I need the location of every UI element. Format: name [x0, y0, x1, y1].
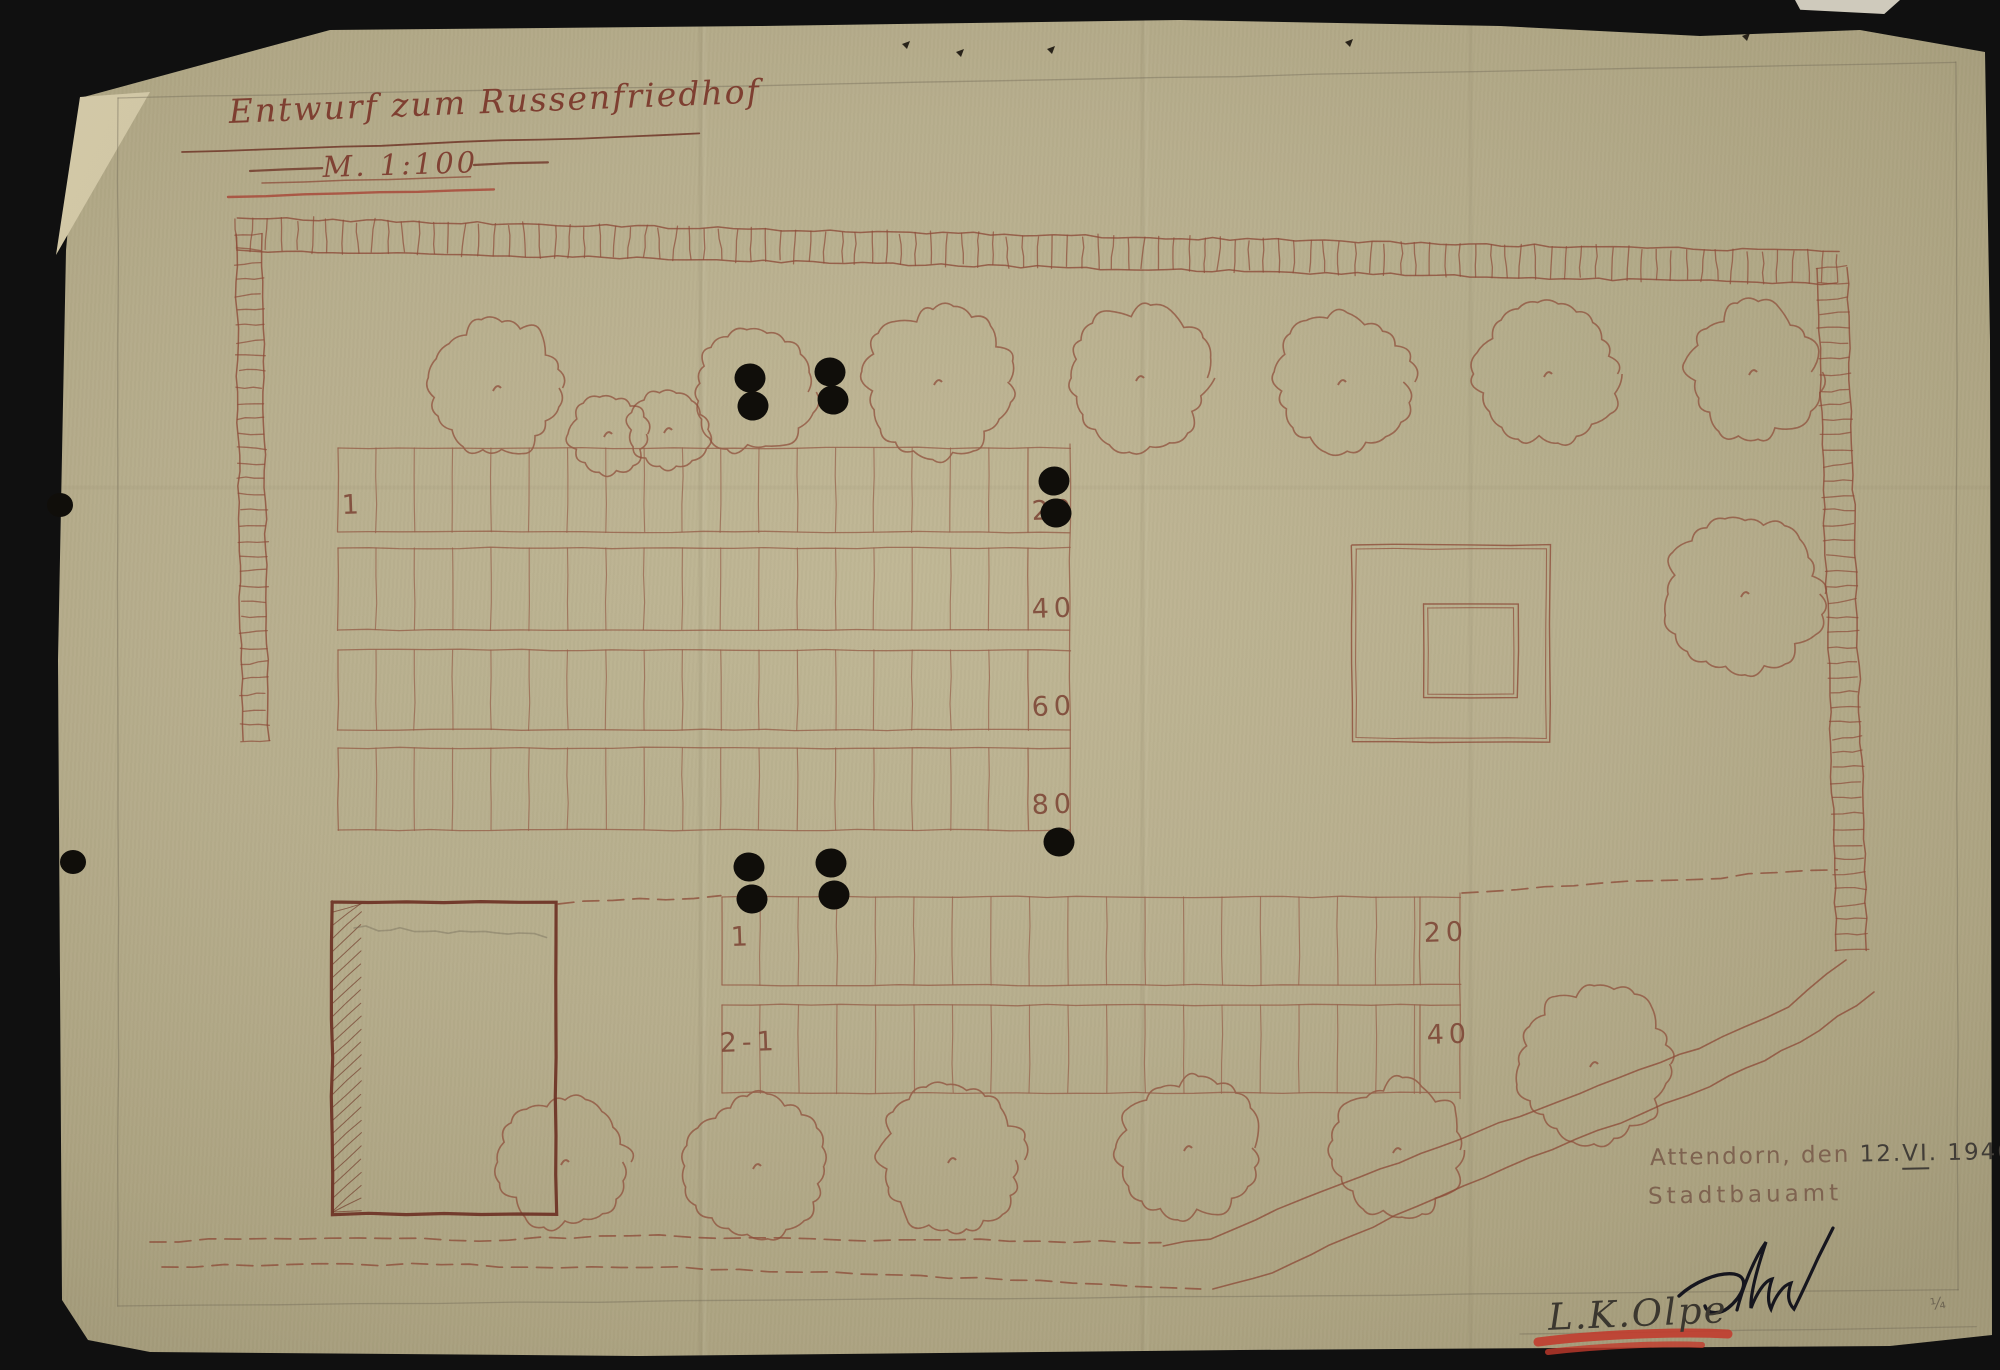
upper-field-grave-divider [529, 650, 530, 730]
hedge-edge [1817, 268, 1836, 950]
hedge-tick [1820, 312, 1849, 315]
hedge-tick [1823, 540, 1854, 541]
upper-field-grave-divider [490, 650, 491, 730]
building-hatch [333, 1042, 361, 1068]
ink-blot-dot [816, 383, 851, 416]
hedge-tick [1808, 249, 1810, 283]
hedge-tick [1836, 903, 1865, 907]
hedge-tick [1747, 252, 1748, 284]
upper-field-row-edge [338, 448, 339, 532]
hedge-tick [401, 222, 404, 252]
hedge-tick [1052, 236, 1053, 269]
hedge-tick [1475, 245, 1476, 277]
building-hatch [333, 904, 361, 912]
hedge-tick [1309, 240, 1311, 272]
hedge-tick [1429, 243, 1430, 275]
building-hatch [333, 964, 361, 990]
sheet-frame-line [1956, 62, 1958, 1290]
ink-blot-dot [1036, 464, 1072, 498]
tree-center-mark [561, 1160, 569, 1165]
hedge-tick [993, 232, 994, 265]
hedge-tick [509, 226, 510, 257]
hedge-tick [240, 724, 269, 725]
hedge-tick [244, 710, 266, 711]
building-outline [331, 902, 556, 1215]
lower-field-grave-divider [914, 897, 915, 985]
hedge-tick [1828, 599, 1856, 604]
upper-field-row-count-label: 80 [1031, 788, 1076, 821]
lower-field-grave-divider [1222, 897, 1223, 985]
hedge-tick [1823, 509, 1854, 511]
upper-field-grave-divider [873, 650, 874, 730]
memorial-outer-square [1351, 544, 1550, 742]
tree-crown [495, 1095, 634, 1231]
hedge-tick [1833, 766, 1864, 767]
upper-field-grave-divider [644, 448, 645, 532]
lower-field-grave-divider [1337, 1005, 1338, 1093]
hedge-tick [1006, 237, 1009, 268]
tree-center-mark [1393, 1148, 1401, 1153]
hedge-tick [297, 222, 299, 250]
lower-field-grave-divider [1107, 1005, 1108, 1093]
hedge-tick [703, 229, 704, 259]
tree-center-mark [493, 386, 501, 391]
building-hatch [333, 1107, 361, 1133]
upper-field-grave-divider [414, 548, 415, 630]
upper-field-grave-divider [644, 748, 645, 830]
building-hatch [333, 990, 361, 1016]
tree-crown [1328, 1076, 1464, 1219]
building-hatch [333, 925, 361, 951]
hedge-tick [1141, 237, 1145, 268]
ink-blot-dot [734, 363, 766, 394]
hedge-tick [1836, 918, 1866, 919]
hedge-tick [1445, 244, 1446, 277]
hedge-tick [1338, 242, 1340, 276]
signature [1737, 1228, 1833, 1310]
ink-blot-dot [736, 389, 771, 422]
hedge-tick [1830, 721, 1861, 722]
upper-field-grave-divider [567, 650, 568, 729]
hedge-tick [240, 693, 265, 695]
hedge-tick [1827, 585, 1858, 587]
hedge-tick [915, 232, 917, 265]
lower-field-row-count-label: 20 [1423, 916, 1468, 949]
hedge-tick [239, 631, 267, 634]
upper-field-grave-divider [720, 748, 721, 829]
lower-field-row-edge [1420, 897, 1421, 985]
building-hatch [333, 1055, 361, 1081]
lower-field-row-line [722, 1092, 1460, 1094]
hedge-tick [1823, 450, 1852, 451]
tree-crown [1069, 303, 1215, 454]
edge-speck [902, 41, 910, 49]
upper-field-grave-divider [720, 548, 721, 630]
building-hatch [333, 1198, 361, 1212]
upper-field-grave-divider [873, 448, 874, 532]
hedge-tick [434, 222, 435, 253]
hedge-tick [238, 433, 263, 434]
hedge-tick [1414, 243, 1416, 276]
hedge-tick [945, 234, 947, 267]
hedge-tick [235, 234, 262, 236]
upper-field-grave-divider [912, 748, 913, 830]
hedge-tick [1263, 238, 1264, 272]
hedge-tick [1111, 236, 1113, 269]
hedge-tick [555, 226, 557, 258]
hedge-tick [461, 223, 465, 256]
upper-field-grave-divider [758, 448, 759, 533]
hedge-tick [238, 493, 264, 495]
building-hatch [333, 1211, 361, 1212]
lower-field-grave-divider [1337, 897, 1338, 985]
hedge-tick [1278, 239, 1279, 273]
path-edge [1213, 992, 1874, 1289]
hedge-tick [1355, 243, 1356, 275]
hedge-tick [1823, 419, 1853, 420]
hedge-tick [523, 222, 526, 257]
scale-underline [228, 189, 494, 197]
hedge-edge [237, 218, 1839, 252]
lower-field-grave-divider [1376, 1005, 1377, 1093]
lower-field-grave-divider [914, 1005, 915, 1093]
hedge-tick [673, 226, 678, 260]
hedge-tick [1792, 251, 1794, 281]
hedge-tick [1762, 252, 1764, 284]
hedge-tick [1656, 249, 1657, 279]
building-hatch [333, 1081, 361, 1107]
upper-field-grave-divider [758, 748, 759, 830]
upper-field-row-line [338, 447, 1070, 449]
upper-field-grave-divider [452, 748, 453, 830]
upper-field-grave-divider [529, 548, 530, 631]
hedge-tick [1204, 238, 1205, 272]
tree-center-mark [664, 428, 672, 433]
hedge-tick [237, 477, 264, 478]
upper-field-grave-divider [951, 748, 952, 831]
building-hatch [333, 1068, 361, 1094]
hedge-tick [568, 225, 570, 258]
upper-field-grave-divider [950, 448, 951, 532]
hedge-tick [238, 542, 268, 543]
hedge-tick [312, 217, 314, 254]
upper-field-grave-divider [376, 448, 377, 533]
hedge-tick [1821, 342, 1848, 343]
hedge-tick [237, 340, 264, 344]
upper-field-grave-divider [452, 448, 453, 532]
lower-field-grave-divider [1260, 1005, 1261, 1093]
punch-hole [60, 850, 86, 874]
upper-field-grave-divider [606, 748, 607, 829]
hedge-tick [1670, 251, 1671, 281]
hedge-tick [1831, 782, 1861, 784]
lower-field-row-line [722, 1004, 1460, 1006]
building-hatch [333, 1016, 361, 1042]
upper-field-grave-divider [491, 748, 492, 830]
hedge-tick [539, 224, 541, 258]
upper-field-grave-divider [529, 748, 530, 830]
hedge-tick [1370, 242, 1372, 273]
hedge-tick [493, 224, 495, 256]
hedge-tick [241, 661, 267, 665]
upper-field-grave-divider [989, 650, 990, 730]
path-edge-dashed [162, 1263, 1201, 1289]
hedge-tick [417, 221, 420, 255]
hedge-tick [235, 263, 261, 266]
hedge-tick [1835, 888, 1866, 890]
hedge-tick [978, 232, 979, 267]
edge-speck [1345, 39, 1353, 47]
hedge-tick [780, 231, 781, 260]
upper-field-grave-divider [758, 650, 759, 730]
upper-field-row-edge [338, 748, 339, 830]
hedge-tick [1641, 250, 1642, 282]
tree-center-mark [948, 1158, 956, 1163]
hedge-tick [1323, 241, 1325, 271]
upper-field-grave-divider [567, 748, 568, 830]
upper-field-grave-divider [912, 448, 913, 533]
lower-field-grave-divider [1299, 897, 1300, 985]
building-hatch [333, 1029, 361, 1055]
hedge-tick [237, 278, 264, 279]
tree-center-mark [604, 432, 612, 437]
upper-field-row-line [338, 747, 1070, 749]
hedge-tick [1820, 432, 1851, 434]
tree-center-mark [753, 1164, 761, 1169]
hedge-tick [1383, 244, 1384, 275]
hedge-tick [1833, 736, 1862, 740]
lower-field-grave-divider [1414, 897, 1415, 985]
upper-field-grave-divider [376, 748, 377, 830]
ink-blot-dot [815, 848, 847, 879]
scale-label: M. 1:100 [322, 145, 479, 184]
lower-field-grave-divider [875, 897, 876, 984]
ink-blot-dot [817, 879, 851, 912]
tree-center-mark [1590, 1062, 1598, 1067]
hedge-tick [265, 219, 267, 250]
hedge-tick [1564, 247, 1566, 280]
tree-crown [1665, 517, 1827, 676]
tree-center-mark [1544, 372, 1552, 377]
hedge-tick [1835, 858, 1863, 859]
upper-field-row-edge [1028, 748, 1029, 830]
hedge-tick [1595, 245, 1597, 277]
upper-field-grave-divider [606, 448, 607, 533]
hedge-tick [1217, 237, 1220, 270]
tree-crown [1272, 309, 1418, 455]
upper-field-grave-divider [644, 650, 645, 730]
upper-field-grave-divider [606, 548, 607, 629]
scale-dash [474, 162, 548, 165]
scale-dash [250, 168, 322, 171]
upper-field-grave-divider [452, 650, 453, 730]
lower-field-row-number-label: 1 [730, 921, 753, 953]
hedge-tick [1827, 555, 1855, 558]
upper-field-row-edge [1028, 650, 1029, 730]
hedge-tick [1835, 934, 1867, 935]
hedge-tick [1776, 250, 1777, 282]
hedge-tick [240, 526, 265, 527]
tree-crown [861, 303, 1015, 462]
edge-speck [956, 49, 964, 57]
hedge-tick [1831, 707, 1860, 708]
tree-center-mark [934, 380, 942, 385]
upper-field-grave-divider [797, 748, 798, 830]
hedge-tick [242, 601, 266, 602]
building-hatch [333, 904, 361, 925]
hedge-tick [478, 224, 479, 256]
hedge-tick [1519, 244, 1521, 278]
upper-field-grave-divider [567, 448, 568, 532]
upper-field-grave-divider [605, 650, 606, 730]
hedge-tick [1550, 247, 1552, 278]
tree-crown [427, 317, 565, 454]
hedge-tick [750, 227, 751, 261]
hedge-tick [242, 616, 266, 617]
hedge-tick [1128, 239, 1129, 270]
pencil-note-squiggle [354, 926, 547, 938]
hedge-tick [1234, 241, 1235, 273]
upper-field-grave-divider [836, 650, 837, 730]
lower-field-grave-divider [1375, 897, 1376, 985]
building-hatch [333, 938, 361, 964]
lower-field-grave-divider [836, 897, 837, 986]
hedge-tick [886, 230, 887, 263]
hedge-tick [1715, 250, 1718, 280]
path-edge-dashed [1462, 870, 1837, 893]
upper-field-grave-divider [835, 748, 836, 830]
lower-field-grave-divider [1106, 897, 1107, 985]
hedge-tick [1612, 248, 1614, 280]
upper-field-grave-divider [950, 650, 951, 730]
hedge-tick [243, 677, 268, 679]
upper-field-row-line [338, 649, 1071, 651]
hedge-tick [930, 231, 931, 264]
lower-field-grave-divider [1260, 897, 1261, 986]
sheet-frame-line [117, 98, 118, 1306]
hedge-tick [872, 231, 873, 263]
hedge-tick [238, 309, 264, 310]
building-hatch [333, 1133, 362, 1159]
punch-hole [47, 493, 73, 517]
hedge-tick [1701, 250, 1704, 282]
office-label: Stadtbauamt [1648, 1180, 1843, 1209]
hedge-tick [1534, 245, 1535, 279]
hedge-tick [1828, 677, 1857, 678]
hedge-tick [1580, 246, 1582, 277]
tree-crown [682, 1091, 826, 1240]
upper-field-grave-divider [375, 548, 376, 630]
tree-center-mark [1184, 1146, 1192, 1151]
hedge-tick [1824, 463, 1852, 468]
lower-field-grave-divider [1222, 1005, 1223, 1093]
hedge-tick [1833, 872, 1865, 875]
hedge-tick [240, 569, 265, 571]
upper-field-grave-divider [797, 448, 798, 532]
red-underline [1548, 1344, 1702, 1352]
hedge-tick [1022, 236, 1024, 267]
edge-speck [1047, 46, 1055, 54]
hedge-tick [1835, 949, 1869, 950]
hedge-tick [241, 741, 270, 742]
hedge-tick [448, 222, 449, 253]
upper-field-row-line [338, 547, 1070, 549]
hedge-tick [1822, 390, 1849, 393]
upper-field-row-line [338, 531, 1070, 533]
hedge-tick [1832, 797, 1861, 798]
upper-field-grave-divider [682, 650, 683, 730]
hedge-tick [599, 224, 600, 256]
hedge-tick [325, 219, 327, 253]
upper-field-grave-divider [720, 448, 721, 532]
hedge-tick [1833, 750, 1862, 753]
building-hatch [333, 1173, 361, 1199]
hedge-tick [1098, 234, 1099, 269]
hedge-edge [1847, 268, 1867, 951]
upper-field-row-number-label: 1 [341, 489, 364, 521]
hedge-tick [1822, 496, 1854, 498]
hedge-tick [236, 387, 261, 388]
upper-field-grave-divider [989, 448, 990, 532]
hedge-tick [1687, 250, 1688, 279]
upper-field-grave-divider [721, 650, 722, 730]
hedge-tick [1832, 812, 1863, 814]
hedge-tick [1173, 238, 1174, 269]
upper-field-row-edge [338, 548, 339, 630]
hedge-tick [1248, 241, 1249, 270]
ink-blot-dot [732, 851, 766, 883]
hedge-tick [842, 232, 843, 262]
scanned-plan-sheet: 204060801204012-1 Entwurf zum Russenfrie… [0, 0, 2000, 1370]
upper-field-grave-divider [950, 548, 951, 630]
lower-field-grave-divider [952, 897, 953, 985]
lower-field-grave-divider [1068, 1005, 1069, 1092]
upper-field-grave-divider [491, 448, 492, 532]
hedge-tick [1828, 647, 1856, 648]
hedge-tick [342, 220, 343, 254]
hedge-tick [356, 223, 359, 253]
hedge-tick [1833, 829, 1863, 830]
lower-field-row-count-label: 40 [1426, 1018, 1471, 1051]
hedge-tick [644, 225, 648, 257]
lower-field-row-line [722, 984, 1461, 986]
hedge-tick [823, 232, 825, 263]
upper-field-grave-divider [567, 548, 568, 630]
hedge-tick [1836, 255, 1838, 283]
upper-field-grave-divider [376, 650, 377, 730]
building-hatch [333, 1159, 361, 1185]
hedge-tick [371, 218, 375, 252]
corner-mark: ¼ [1929, 1293, 1947, 1314]
upper-field-grave-divider [873, 548, 874, 630]
hedge-tick [238, 404, 264, 405]
hedge-tick [1828, 662, 1857, 664]
lower-field-grave-divider [991, 1005, 992, 1093]
lower-field-grave-divider [798, 897, 799, 986]
hedge-tick [240, 556, 267, 557]
hedge-tick [240, 648, 267, 649]
upper-field-row-edge [1028, 548, 1029, 630]
hedge-tick [1827, 617, 1858, 618]
hedge-tick [854, 232, 856, 264]
hedge-tick [809, 231, 811, 261]
hedge-tick [1825, 571, 1857, 573]
hedge-tick [239, 586, 268, 587]
hedge-tick [899, 235, 901, 265]
hedge-tick [1819, 402, 1849, 406]
upper-field-grave-divider [682, 548, 683, 629]
lower-field-grave-divider [952, 1005, 953, 1093]
